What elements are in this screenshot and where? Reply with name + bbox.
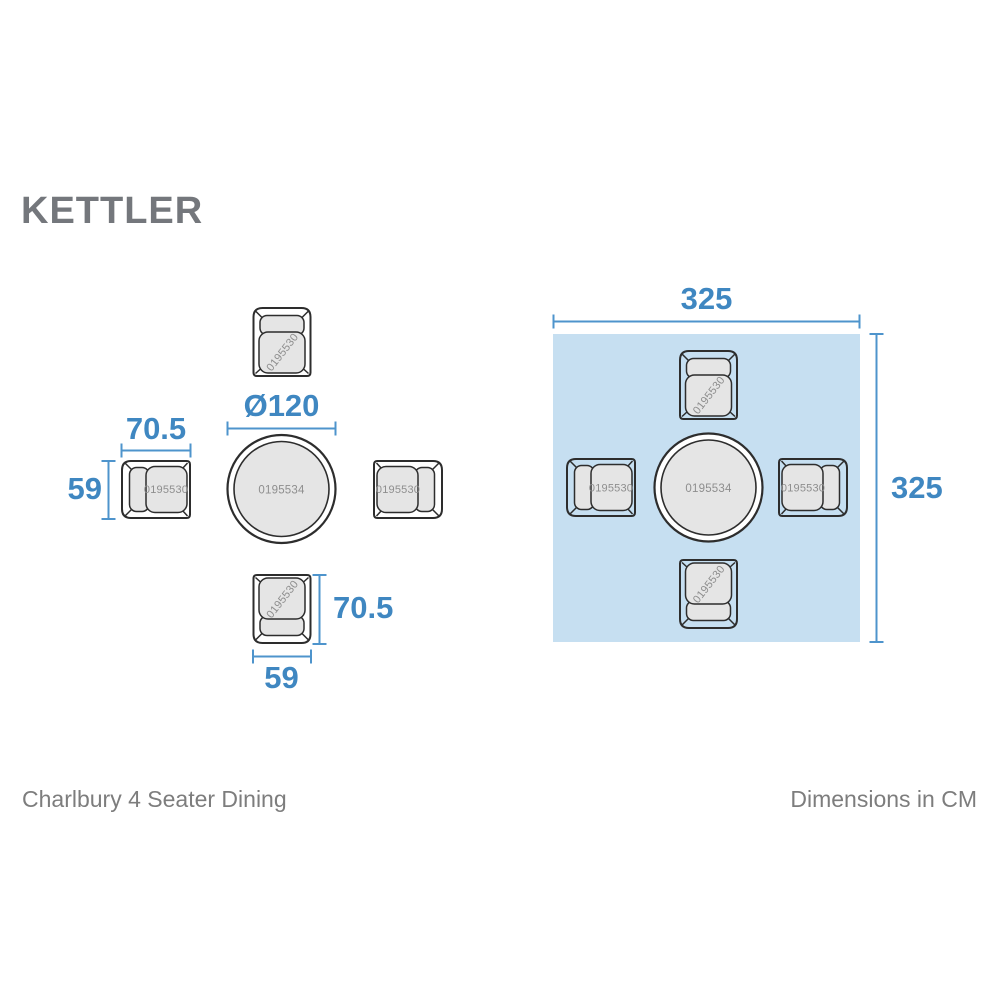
chair-left-sku-label: 0195530 [144,484,188,496]
footprint-height-label: 325 [891,470,943,505]
chair-width-label-bottom: 59 [264,660,298,695]
chair-width-label-left: 59 [68,471,102,506]
footprint-chair-top [680,351,737,419]
chair-top [254,308,311,376]
chair-depth-label-bottom: 70.5 [333,590,393,625]
diagram-page: KETTLER 0195530 0195530 [0,0,1000,1000]
exploded-view-diagram: 0195530 0195530 0195530 0195530 0195534 … [68,308,442,695]
footprint-chair-left-sku-label: 0195530 [589,483,633,495]
footprint-width-label: 325 [681,281,733,316]
dimension-diagram-canvas: 0195530 0195530 0195530 0195530 0195534 … [0,0,1000,1000]
table-diameter-dimension-line [228,422,336,436]
units-note-caption: Dimensions in CM [790,786,977,814]
footprint-chair-right-sku-label: 0195530 [781,483,825,495]
footprint-height-dimension-line [870,334,884,642]
chair-depth-label-top: 70.5 [126,411,186,446]
footprint-diagram: 325 325 0195530 0195530 0195530 0195530 … [553,281,943,642]
chair-right-sku-label: 0195530 [376,484,420,496]
chair-depth-dimension-line-bottom [313,575,327,644]
product-name-caption: Charlbury 4 Seater Dining [22,786,287,814]
footprint-table-sku-label: 0195534 [685,483,732,495]
table-sku-label: 0195534 [258,485,305,497]
table-diameter-label: Ø120 [244,388,320,423]
footprint-width-dimension-line [554,315,860,329]
chair-width-dimension-line-left [102,461,116,519]
